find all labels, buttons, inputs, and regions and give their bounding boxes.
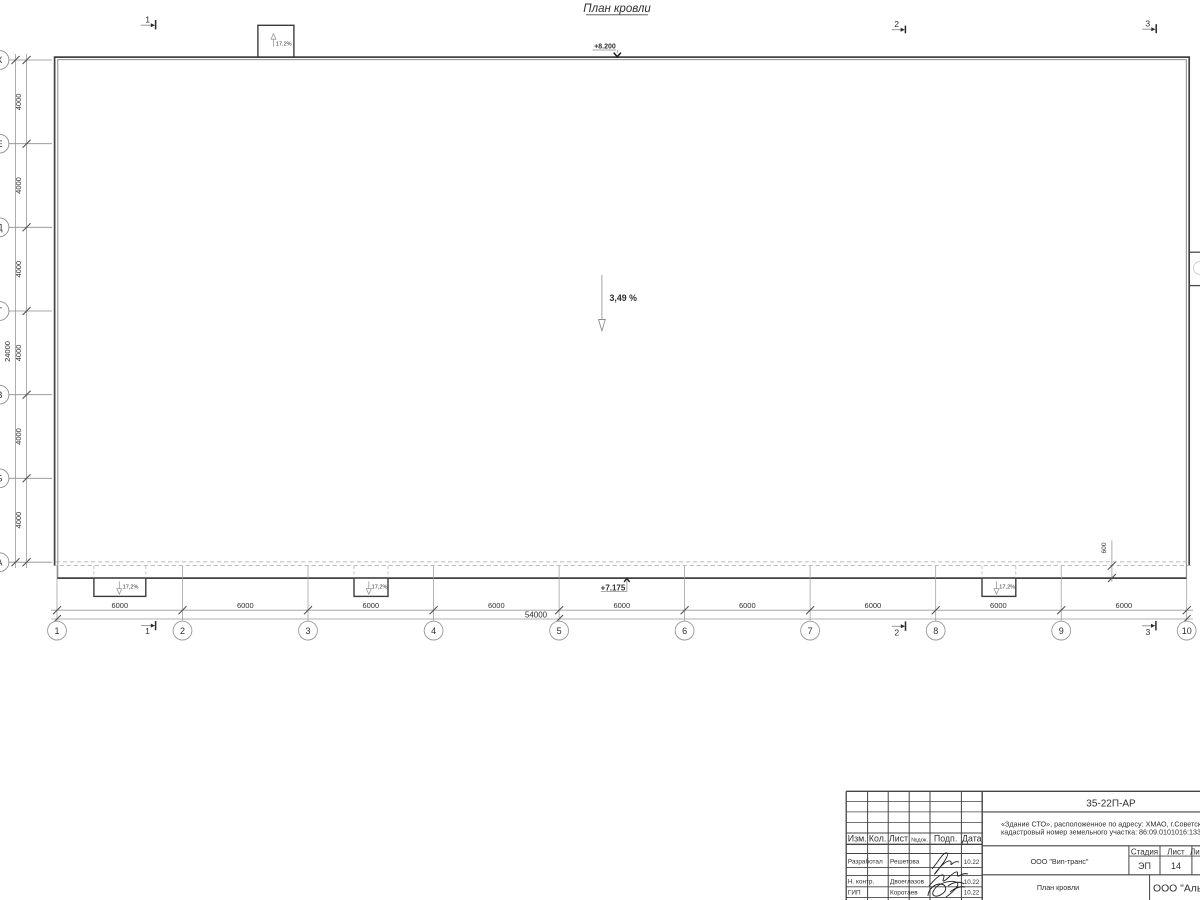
svg-text:6000: 6000 <box>362 601 379 610</box>
svg-text:Подп.: Подп. <box>934 834 957 844</box>
svg-text:Изм.: Изм. <box>848 834 867 844</box>
svg-text:2: 2 <box>894 19 899 29</box>
svg-text:4000: 4000 <box>14 177 23 194</box>
svg-text:35-22П-АР: 35-22П-АР <box>1086 798 1136 809</box>
svg-text:ЭП: ЭП <box>1138 861 1151 871</box>
svg-text:8: 8 <box>933 626 938 636</box>
svg-text:ГИП: ГИП <box>848 889 861 896</box>
svg-text:6000: 6000 <box>613 601 630 610</box>
svg-text:9: 9 <box>1059 626 1064 636</box>
svg-text:Г: Г <box>0 306 2 316</box>
svg-text:3: 3 <box>1146 627 1151 637</box>
svg-text:3: 3 <box>1145 19 1150 29</box>
svg-text:4000: 4000 <box>14 512 23 529</box>
svg-text:6000: 6000 <box>739 601 756 610</box>
svg-text:Д: Д <box>0 223 3 233</box>
svg-text:6000: 6000 <box>111 601 128 610</box>
svg-text:6000: 6000 <box>488 601 505 610</box>
svg-text:Лист: Лист <box>1167 848 1185 857</box>
svg-text:1: 1 <box>54 626 59 636</box>
svg-text:Дата: Дата <box>962 834 982 844</box>
svg-text:17,2%: 17,2% <box>123 585 139 591</box>
svg-text:6000: 6000 <box>237 601 254 610</box>
svg-text:2: 2 <box>894 628 899 638</box>
svg-text:Б: Б <box>0 474 3 484</box>
svg-text:54000: 54000 <box>525 610 548 619</box>
svg-text:6000: 6000 <box>1116 601 1133 610</box>
svg-text:17,2%: 17,2% <box>999 585 1015 591</box>
svg-text:1: 1 <box>145 15 150 25</box>
svg-text:Н. контр.: Н. контр. <box>848 879 875 886</box>
svg-text:ООО "Альянс": ООО "Альянс" <box>1153 884 1200 895</box>
svg-text:+8.200: +8.200 <box>594 43 616 50</box>
svg-text:4000: 4000 <box>14 345 23 362</box>
svg-text:17,2%: 17,2% <box>372 585 388 591</box>
svg-text:14: 14 <box>1171 861 1181 871</box>
svg-text:4: 4 <box>431 626 436 636</box>
svg-text:ООО "Вип-транс": ООО "Вип-транс" <box>1031 857 1089 866</box>
svg-text:План кровли: План кровли <box>1037 883 1079 892</box>
svg-text:Лист: Лист <box>889 834 908 844</box>
svg-text:Разработал: Разработал <box>848 858 883 866</box>
svg-text:Листов: Листов <box>1190 848 1200 857</box>
svg-text:10.22: 10.22 <box>964 879 980 886</box>
svg-text:4000: 4000 <box>14 428 23 445</box>
svg-text:24000: 24000 <box>3 341 12 362</box>
svg-text:10.22: 10.22 <box>964 859 980 866</box>
svg-text:В: В <box>0 390 3 400</box>
svg-text:6: 6 <box>682 626 687 636</box>
svg-text:7: 7 <box>808 626 813 636</box>
svg-text:6000: 6000 <box>865 601 882 610</box>
svg-text:600: 600 <box>1101 542 1108 553</box>
svg-text:1: 1 <box>145 626 150 636</box>
svg-text:План кровли: План кровли <box>583 3 651 15</box>
svg-text:№док.: №док. <box>911 837 928 843</box>
svg-text:А: А <box>0 557 3 567</box>
svg-text:2: 2 <box>180 626 185 636</box>
svg-text:10: 10 <box>1182 626 1192 636</box>
svg-text:Кол.: Кол. <box>869 834 886 844</box>
svg-text:Стадия: Стадия <box>1131 848 1158 857</box>
svg-text:3: 3 <box>305 626 310 636</box>
svg-text:Е: Е <box>0 139 3 149</box>
svg-text:10.22: 10.22 <box>964 890 980 897</box>
svg-text:6000: 6000 <box>990 601 1007 610</box>
svg-text:Решетова: Решетова <box>890 859 920 866</box>
svg-text:3,49 %: 3,49 % <box>610 293 638 303</box>
svg-text:4000: 4000 <box>14 94 23 111</box>
svg-text:4000: 4000 <box>14 261 23 278</box>
svg-text:Коротаев: Коротаев <box>890 889 918 896</box>
svg-text:кадастровый номер земельного у: кадастровый номер земельного участка: 86… <box>1001 827 1200 836</box>
svg-text:Двоеглазов: Двоеглазов <box>890 879 925 886</box>
svg-text:5: 5 <box>557 626 562 636</box>
svg-text:17,2%: 17,2% <box>276 41 292 47</box>
